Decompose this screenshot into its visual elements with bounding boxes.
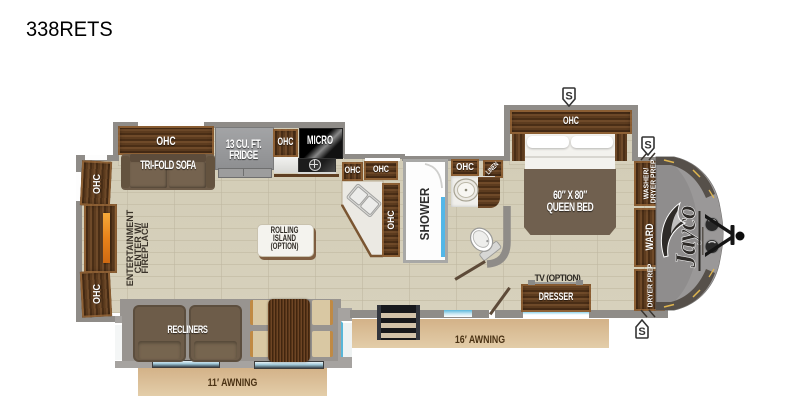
svg-text:S: S — [644, 140, 651, 152]
svg-text:S: S — [638, 326, 645, 338]
svg-text:S: S — [565, 91, 572, 103]
